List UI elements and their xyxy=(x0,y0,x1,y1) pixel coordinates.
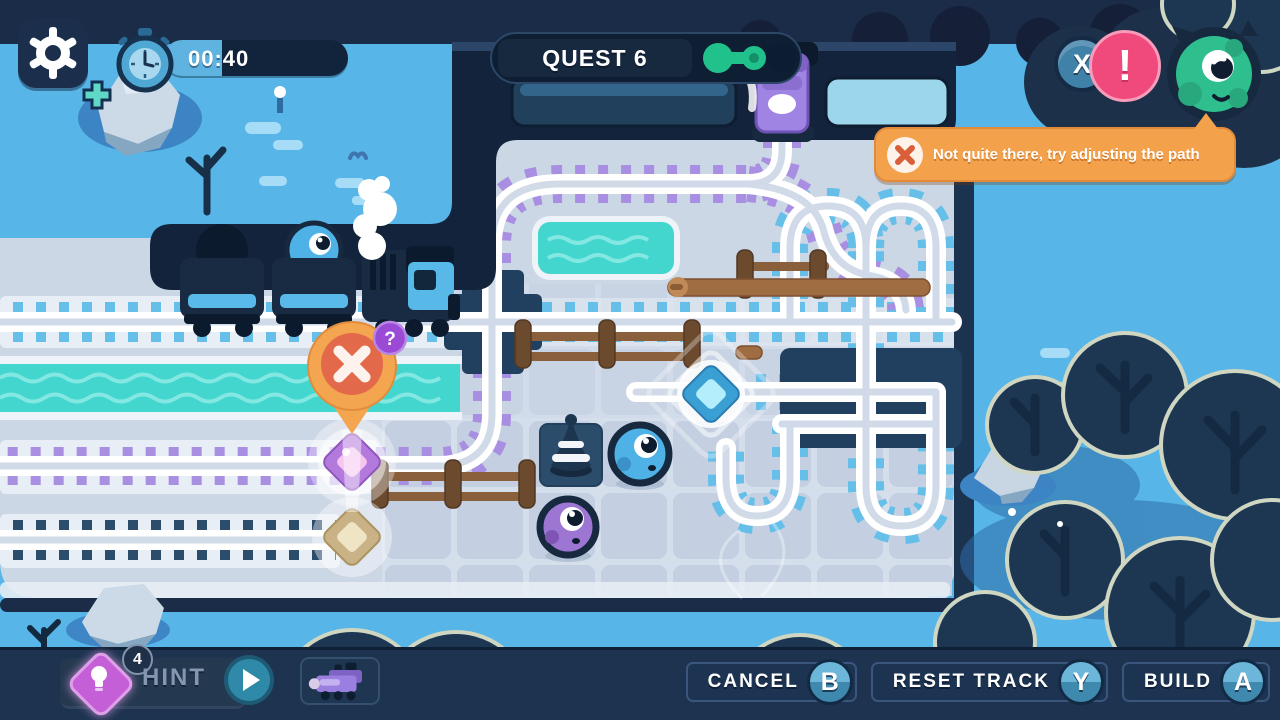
play-button[interactable] xyxy=(224,655,274,705)
lightbulb-icon xyxy=(90,666,108,692)
error-tooltip: Not quite there, try adjusting the path xyxy=(874,127,1236,182)
train-thumbnail[interactable] xyxy=(300,657,380,705)
plus-icon xyxy=(80,78,114,112)
gamepad-b-icon: B xyxy=(807,659,853,705)
mascot-avatar[interactable] xyxy=(1162,20,1266,124)
cancel-button[interactable]: CANCEL B xyxy=(686,658,857,706)
timer-bar: 00:40 xyxy=(164,40,348,76)
alert-symbol: ! xyxy=(1118,41,1133,91)
quest-banner: QUEST 6 xyxy=(490,32,802,84)
sparkle-dot xyxy=(1057,521,1063,527)
bottom-bar: 4 HINT CANCEL B RESET TRACK Y BUILD A xyxy=(0,647,1280,720)
game-board[interactable]: ? xyxy=(0,0,1280,720)
settings-button[interactable] xyxy=(18,18,88,88)
tooltip-message: Not quite there, try adjusting the path xyxy=(933,146,1200,163)
tooltip-error-icon xyxy=(887,137,923,173)
hint-label: HINT xyxy=(142,664,206,692)
traffic-cone[interactable] xyxy=(540,414,602,486)
action-buttons: CANCEL B RESET TRACK Y BUILD A xyxy=(686,658,1270,706)
timer: 00:40 xyxy=(112,26,362,90)
stopwatch-icon xyxy=(112,26,176,94)
gamepad-a-icon: A xyxy=(1220,659,1266,705)
svg-text:?: ? xyxy=(384,329,396,350)
butterfly xyxy=(350,153,366,158)
gear-icon xyxy=(18,18,88,88)
quest-progress-icon xyxy=(698,36,798,80)
tooltip-arrow xyxy=(1194,113,1218,129)
game-screen: ? xyxy=(0,0,1280,720)
reset-track-button[interactable]: RESET TRACK Y xyxy=(871,658,1108,706)
question-badge[interactable]: ? xyxy=(374,322,406,354)
alert-badge[interactable]: ! xyxy=(1089,30,1161,102)
quest-title: QUEST 6 xyxy=(498,39,692,77)
build-button[interactable]: BUILD A xyxy=(1122,658,1270,706)
gamepad-y-icon: Y xyxy=(1058,659,1104,705)
pool xyxy=(532,216,680,280)
play-icon xyxy=(243,669,260,691)
sparkle-dot xyxy=(1008,508,1016,516)
timer-value: 00:40 xyxy=(188,40,249,76)
